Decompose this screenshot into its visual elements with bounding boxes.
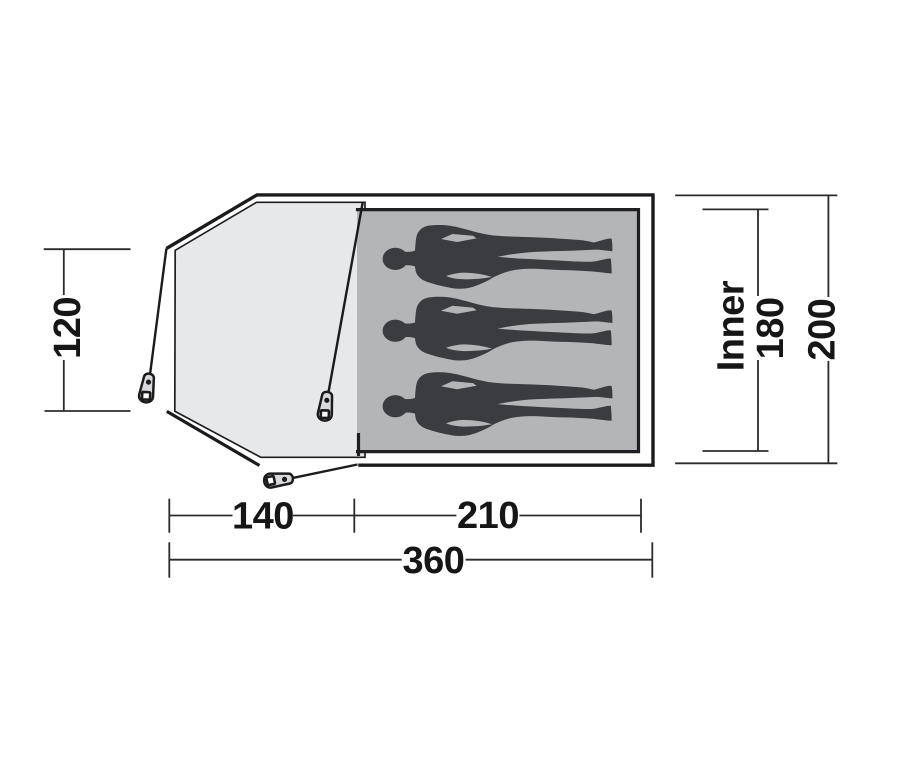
svg-text:120: 120 bbox=[47, 297, 89, 359]
svg-text:200: 200 bbox=[802, 299, 844, 361]
svg-text:360: 360 bbox=[402, 540, 464, 582]
svg-text:210: 210 bbox=[457, 495, 519, 537]
svg-text:180: 180 bbox=[750, 297, 792, 359]
svg-text:Inner: Inner bbox=[711, 280, 753, 371]
svg-text:140: 140 bbox=[232, 495, 294, 537]
